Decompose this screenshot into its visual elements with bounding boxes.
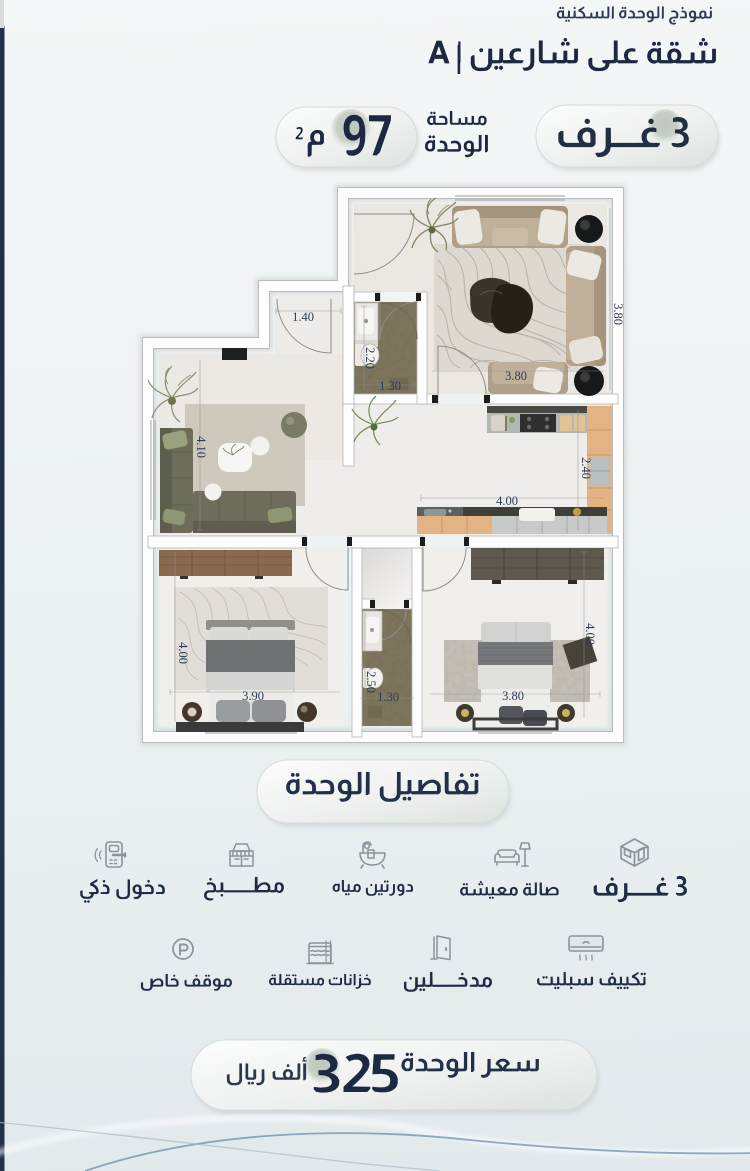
svg-text:1.40: 1.40 — [292, 310, 314, 324]
svg-text:2.50: 2.50 — [364, 671, 378, 693]
svg-text:3.80: 3.80 — [502, 689, 524, 703]
svg-text:3.80: 3.80 — [611, 303, 625, 325]
svg-text:2.40: 2.40 — [579, 457, 593, 479]
svg-text:3.90: 3.90 — [242, 689, 264, 703]
svg-text:4.10: 4.10 — [194, 436, 208, 458]
svg-text:4.00: 4.00 — [496, 494, 518, 508]
svg-text:3.80: 3.80 — [505, 369, 527, 383]
svg-text:2.20: 2.20 — [363, 347, 377, 369]
svg-text:4.00: 4.00 — [583, 623, 597, 645]
svg-text:1.30: 1.30 — [379, 379, 401, 393]
svg-text:1.30: 1.30 — [377, 690, 399, 704]
svg-text:4.00: 4.00 — [176, 642, 190, 664]
